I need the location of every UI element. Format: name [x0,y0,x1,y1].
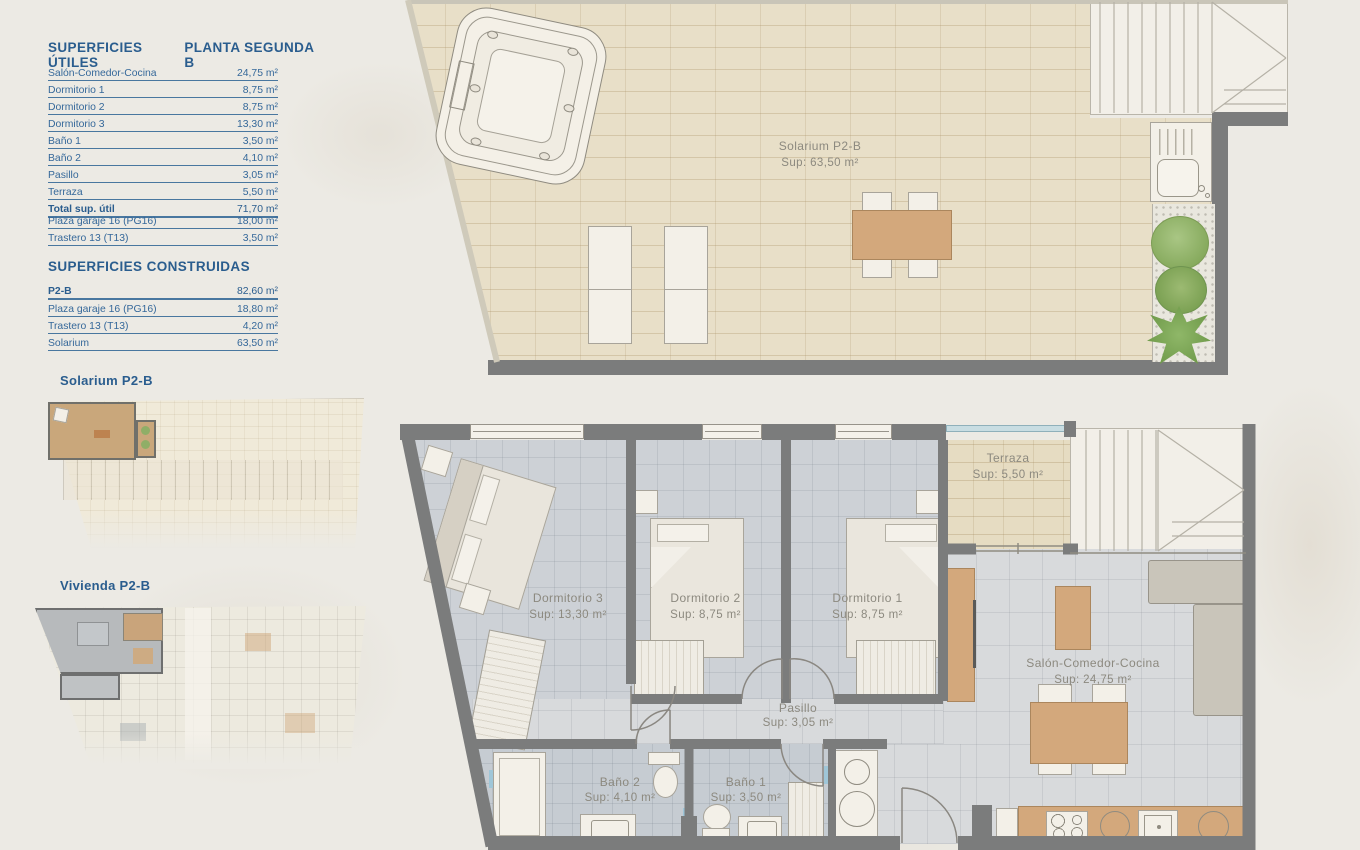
table-row: Terraza 5,50 m² [48,183,278,200]
row-label: Terraza [48,187,83,198]
solarium-plan: Solarium P2-B Sup: 63,50 m² [400,0,1290,378]
thumb-furniture-patch [245,633,271,651]
row-value: 18,80 m² [237,304,278,315]
window [470,424,584,439]
apartment-walls [398,418,1260,850]
row-value: 3,05 m² [243,170,278,181]
row-label: Dormitorio 1 [48,85,105,96]
window-frame [705,431,759,432]
outdoor-table [852,210,952,260]
room-name: Baño 2 [550,774,690,790]
row-label: Pasillo [48,170,79,181]
room-name: Dormitorio 1 [790,590,945,607]
table-row: P2-B 82,60 m² [48,282,278,300]
room-name: Salón-Comedor-Cocina [998,655,1188,672]
room-name: Terraza [933,450,1083,467]
thumb-corridor [63,460,343,500]
row-value: 5,50 m² [243,187,278,198]
dormitorio3-label: Dormitorio 3 Sup: 13,30 m² [488,590,648,624]
room-area: Sup: 3,50 m² [676,790,816,806]
row-value: 18,00 m² [237,216,278,227]
vivienda-thumbnail [30,603,368,765]
apartment-plan: Dormitorio 3 Sup: 13,30 m² Dormitorio 2 … [398,418,1260,850]
room-area: Sup: 8,75 m² [628,607,783,624]
utiles-table: Salón-Comedor-Cocina 24,75 m² Dormitorio… [48,64,278,218]
chair [862,258,892,278]
table-row: Plaza garaje 16 (PG16) 18,00 m² [48,212,278,229]
window [702,424,762,439]
row-value: 8,75 m² [243,102,278,113]
sink-tap [1205,193,1210,198]
window-frame [838,431,889,432]
row-value: 4,10 m² [243,153,278,164]
solarium-room-label: Solarium P2-B Sup: 63,50 m² [720,138,920,172]
thumb-jacuzzi [53,407,70,424]
table-row: Trastero 13 (T13) 4,20 m² [48,317,278,334]
thumb-room-patch [77,622,109,646]
row-value: 4,20 m² [243,321,278,332]
row-label: Salón-Comedor-Cocina [48,68,157,79]
row-label: Baño 2 [48,153,81,164]
sink-tap [1198,185,1205,192]
thumb-highlight-ext [136,420,156,458]
row-label: Trastero 13 (T13) [48,321,128,332]
utiles-annex-table: Plaza garaje 16 (PG16) 18,00 m² Trastero… [48,212,278,246]
surface-tables-panel: SUPERFICIES ÚTILES PLANTA SEGUNDA B Saló… [48,40,316,70]
fern-plant [1147,306,1211,364]
sun-lounger [664,226,708,344]
row-value: 24,75 m² [237,68,278,79]
table-row: Pasillo 3,05 m² [48,166,278,183]
chair [862,192,892,212]
lounger-fold [589,289,631,290]
outdoor-sink-unit [1150,122,1212,202]
table-row: Baño 2 4,10 m² [48,149,278,166]
plant [1151,216,1209,270]
terraza-pillar [1064,421,1076,437]
table-row: Dormitorio 2 8,75 m² [48,98,278,115]
sun-lounger [588,226,632,344]
thumb-plants [141,440,150,449]
room-area: Sup: 3,05 m² [728,716,868,731]
dormitorio2-label: Dormitorio 2 Sup: 8,75 m² [628,590,783,624]
room-area: Sup: 8,75 m² [790,607,945,624]
row-value: 3,50 m² [243,136,278,147]
pasillo-label: Pasillo Sup: 3,05 m² [728,701,868,731]
thumb-plants [141,426,150,435]
table-row: Trastero 13 (T13) 3,50 m² [48,229,278,246]
chair [908,258,938,278]
thumb-terraza-room [123,613,163,641]
thumb-fade [30,733,368,769]
room-area: Sup: 5,50 m² [933,467,1083,484]
vivienda-thumb-title: Vivienda P2-B [60,578,150,593]
terraza-glass-rail [946,425,1070,432]
sink-drainer [1159,129,1199,155]
table-row: Baño 1 3,50 m² [48,132,278,149]
table-row: Dormitorio 3 13,30 m² [48,115,278,132]
room-name: Pasillo [728,701,868,716]
table-row: Solarium 63,50 m² [48,334,278,351]
solarium-thumbnail [33,398,365,548]
thumb-highlight-unit [35,608,163,674]
window-frame [473,431,581,432]
thumb-furniture-patch [133,648,153,664]
row-label: Dormitorio 2 [48,102,105,113]
terraza-label: Terraza Sup: 5,50 m² [933,450,1083,484]
table-row: Plaza garaje 16 (PG16) 18,80 m² [48,300,278,317]
room-area: Sup: 13,30 m² [488,607,648,624]
window [835,424,892,439]
dormitorio1-label: Dormitorio 1 Sup: 8,75 m² [790,590,945,624]
thumb-furniture-patch [285,713,315,733]
construidas-title: SUPERFICIES CONSTRUIDAS [48,259,250,274]
room-name: Baño 1 [676,774,816,790]
solarium-thumb-title: Solarium P2-B [60,373,153,388]
room-name: Dormitorio 2 [628,590,783,607]
row-label: Baño 1 [48,136,81,147]
thumb-highlight-solarium [48,402,136,460]
row-label: Trastero 13 (T13) [48,233,128,244]
thumb-table [94,430,110,438]
row-value: 8,75 m² [243,85,278,96]
planter-bed [1152,204,1215,362]
thumb-highlight-lower [60,674,120,700]
room-area: Sup: 4,10 m² [550,790,690,806]
row-value: 13,30 m² [237,119,278,130]
table-row: Salón-Comedor-Cocina 24,75 m² [48,64,278,81]
plant [1155,266,1207,314]
row-label: Solarium [48,338,89,349]
bano2-label: Baño 2 Sup: 4,10 m² [550,774,690,806]
chair [908,192,938,212]
room-name: Solarium P2-B [720,138,920,155]
row-value: 3,50 m² [243,233,278,244]
sink-basin [1157,159,1199,197]
row-value: 63,50 m² [237,338,278,349]
lounger-fold [665,289,707,290]
salon-label: Salón-Comedor-Cocina Sup: 24,75 m² [998,655,1188,689]
table-row: Dormitorio 1 8,75 m² [48,81,278,98]
row-label: Dormitorio 3 [48,119,105,130]
jacuzzi [430,2,612,190]
bano1-label: Baño 1 Sup: 3,50 m² [676,774,816,806]
row-label: Plaza garaje 16 (PG16) [48,216,157,227]
room-name: Dormitorio 3 [488,590,648,607]
room-area: Sup: 24,75 m² [998,672,1188,689]
room-area: Sup: 63,50 m² [720,155,920,172]
construidas-table: P2-B 82,60 m² Plaza garaje 16 (PG16) 18,… [48,282,278,351]
thumb-fade [33,510,365,552]
row-label: Plaza garaje 16 (PG16) [48,304,157,315]
brochure-page: SUPERFICIES ÚTILES PLANTA SEGUNDA B Saló… [0,0,1360,850]
row-label: P2-B [48,286,72,297]
row-value: 82,60 m² [237,286,278,297]
